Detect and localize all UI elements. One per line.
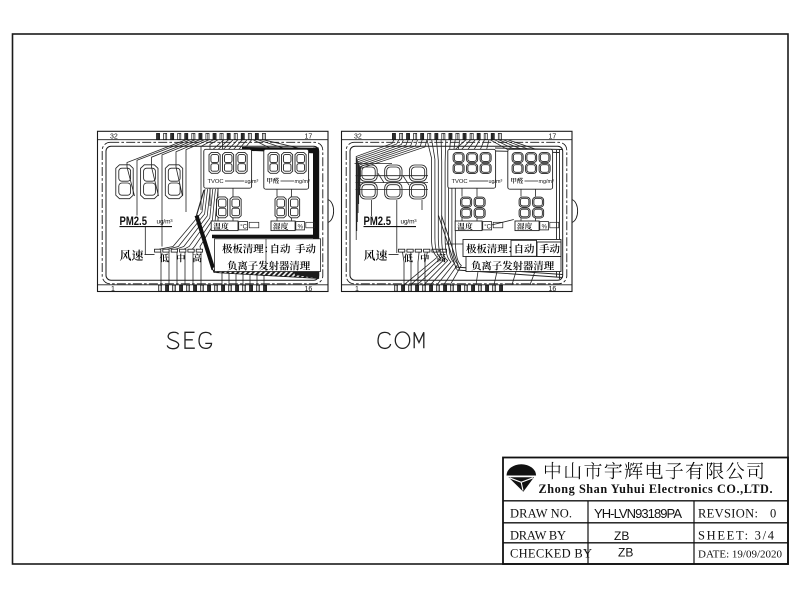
svg-text:1: 1 <box>355 286 359 293</box>
svg-text:DATE: 19/09/2020: DATE: 19/09/2020 <box>698 549 783 561</box>
svg-text:16: 16 <box>549 286 557 293</box>
svg-text:%: % <box>298 224 304 230</box>
svg-text:ZB: ZB <box>614 529 629 543</box>
svg-text:TVOC: TVOC <box>208 179 224 185</box>
svg-text:ug/m³: ug/m³ <box>245 179 259 185</box>
svg-text:Zhong Shan Yuhui Electronics C: Zhong Shan Yuhui Electronics CO.,LTD. <box>539 482 773 496</box>
svg-text:16: 16 <box>305 286 313 293</box>
svg-text:°C: °C <box>240 224 247 230</box>
svg-text:0: 0 <box>770 507 776 521</box>
svg-text:PM2.5: PM2.5 <box>120 214 148 228</box>
svg-text:1: 1 <box>111 286 115 293</box>
svg-text:DRAW BY: DRAW BY <box>510 529 566 543</box>
svg-text:°C: °C <box>484 224 491 230</box>
svg-text:32: 32 <box>354 133 362 140</box>
svg-text:REVSION:: REVSION: <box>698 507 758 521</box>
svg-text:DRAW NO.: DRAW NO. <box>510 507 572 521</box>
svg-text:%: % <box>542 224 548 230</box>
svg-text:CHECKED BY: CHECKED BY <box>510 547 592 561</box>
svg-text:ug/m³: ug/m³ <box>401 219 418 226</box>
svg-text:PM2.5: PM2.5 <box>364 214 392 228</box>
svg-text:mg/m³: mg/m³ <box>295 179 310 185</box>
svg-text:ZB: ZB <box>618 546 633 560</box>
svg-text:mg/m³: mg/m³ <box>539 179 554 185</box>
svg-text:SHEET: 3/4: SHEET: 3/4 <box>698 529 775 543</box>
svg-text:ug/m³: ug/m³ <box>489 179 503 185</box>
svg-text:32: 32 <box>110 133 118 140</box>
svg-text:ug/m³: ug/m³ <box>157 219 174 226</box>
svg-text:YH-LVN93189PA: YH-LVN93189PA <box>594 506 682 521</box>
svg-text:TVOC: TVOC <box>452 179 468 185</box>
svg-text:17: 17 <box>305 133 313 140</box>
svg-text:17: 17 <box>549 133 557 140</box>
